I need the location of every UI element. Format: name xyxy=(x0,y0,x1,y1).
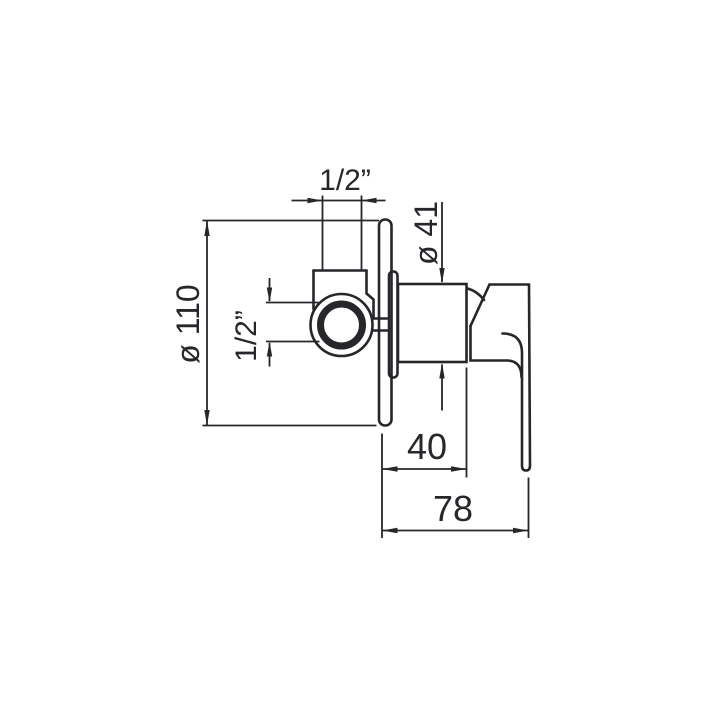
dimension-lines xyxy=(203,196,529,539)
wall-plate-hub xyxy=(389,272,398,378)
dim-plate-diameter xyxy=(203,221,380,426)
inlet-port-ring xyxy=(321,304,363,346)
handle-underside xyxy=(471,326,522,377)
arrow-right-icon xyxy=(513,528,529,533)
arrow-left-icon xyxy=(362,198,377,203)
technical-drawing: 1/2” ø 110 1/2” ø 41 40 78 xyxy=(0,0,704,704)
label-top-connection: 1/2” xyxy=(319,164,371,197)
label-body-diameter: ø 41 xyxy=(408,201,444,265)
body-cylinder xyxy=(398,284,467,362)
arrow-down-icon xyxy=(439,268,444,284)
arrow-down-icon xyxy=(204,410,209,426)
label-total-depth: 78 xyxy=(433,488,473,529)
arrow-down-icon xyxy=(267,288,272,303)
label-plate-diameter: ø 110 xyxy=(170,284,206,363)
label-body-depth: 40 xyxy=(407,426,447,467)
arrow-up-icon xyxy=(204,221,209,237)
arrow-left-icon xyxy=(382,466,398,471)
dimension-labels: 1/2” ø 110 1/2” ø 41 40 78 xyxy=(170,164,473,529)
arrow-up-icon xyxy=(267,342,272,357)
arrowheads xyxy=(204,198,528,533)
dim-top-connection xyxy=(292,196,386,271)
arrow-right-icon xyxy=(451,466,467,471)
handle-neck-fillet xyxy=(468,289,485,301)
drawing-canvas: 1/2” ø 110 1/2” ø 41 40 78 xyxy=(0,0,704,704)
label-side-connection: 1/2” xyxy=(230,310,263,362)
lever-handle xyxy=(468,285,531,471)
arrow-up-icon xyxy=(439,363,444,379)
arrow-right-icon xyxy=(308,198,323,203)
arrow-left-icon xyxy=(382,528,398,533)
